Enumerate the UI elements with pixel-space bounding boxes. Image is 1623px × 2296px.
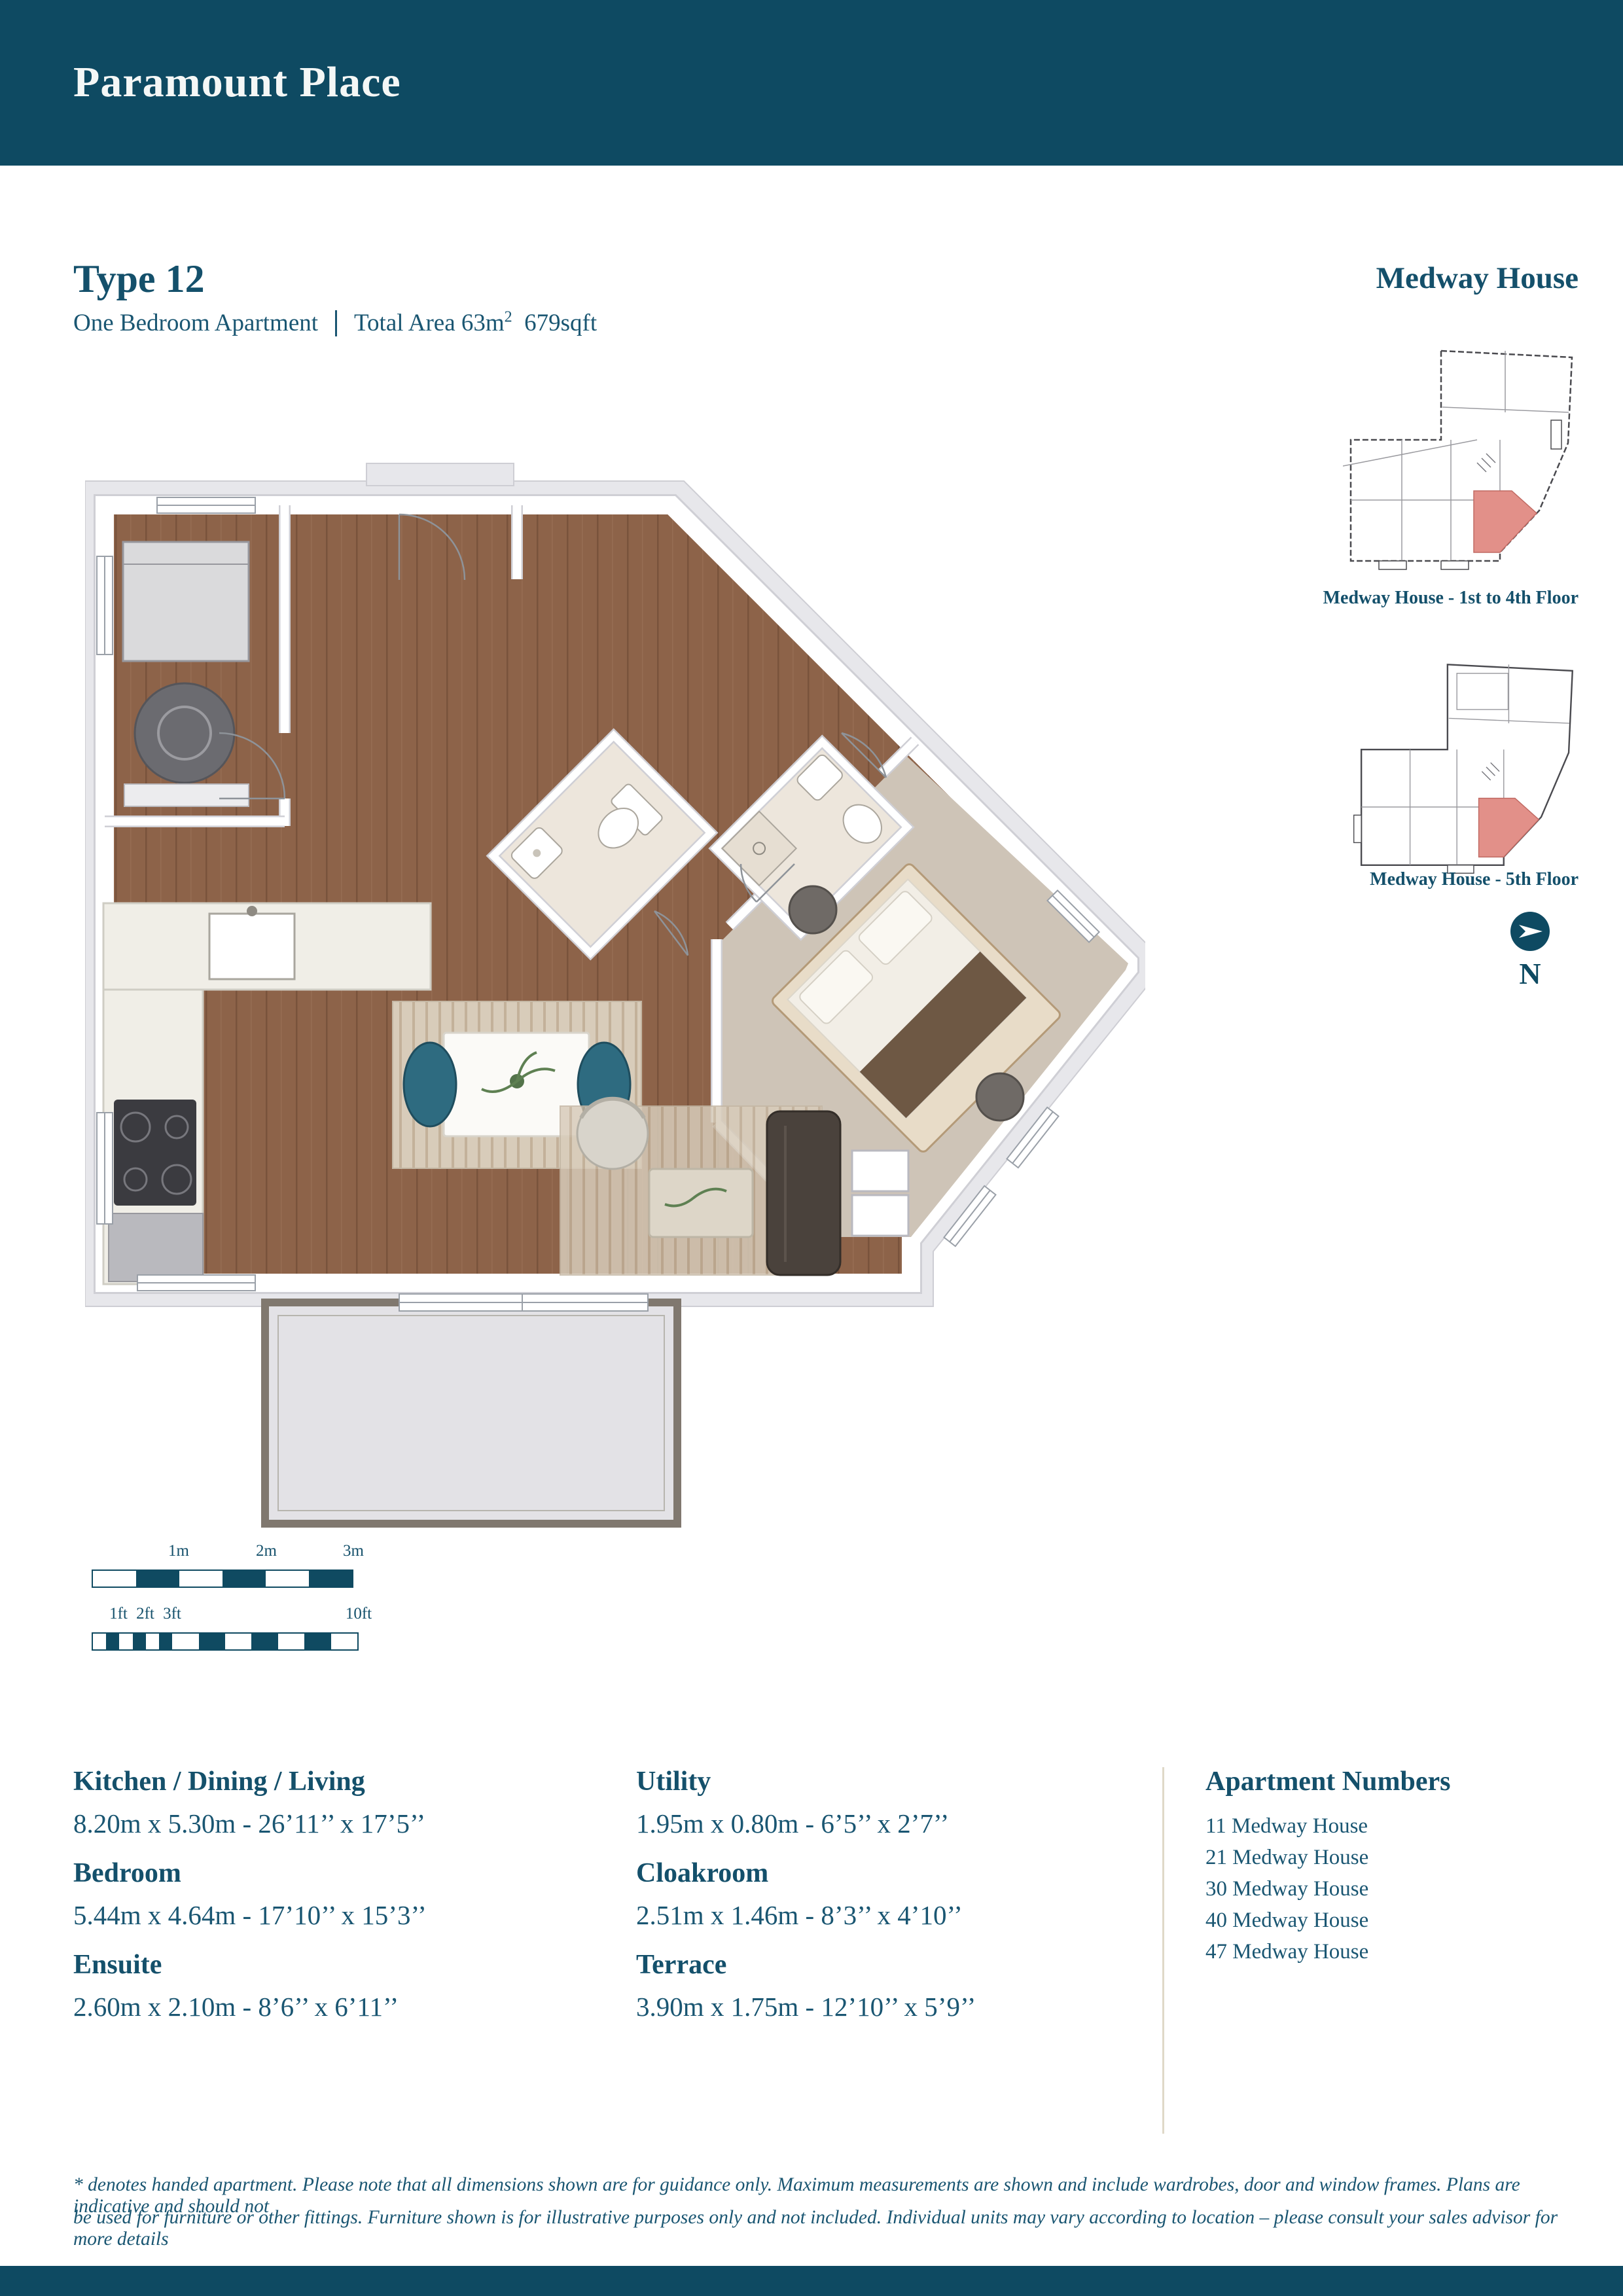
subtitle-divider [335, 310, 337, 336]
bedside-table [789, 886, 836, 933]
sofa [767, 1111, 840, 1275]
utility-shelf [124, 784, 249, 806]
scale-label-2ft: 2ft [136, 1605, 154, 1623]
scale-bar-imperial [92, 1632, 359, 1651]
sink-icon [209, 914, 294, 979]
room-dimensions: 2.60m x 2.10m - 8’6’’ x 6’11’’ [73, 1991, 399, 2022]
scale-bar-metric [92, 1570, 353, 1588]
locator-caption-5th: Medway House - 5th Floor [1212, 869, 1578, 890]
apartment-numbers-title: Apartment Numbers [1205, 1766, 1450, 1797]
scale-label-1ft: 1ft [109, 1605, 128, 1623]
scale-label-3ft: 3ft [163, 1605, 181, 1623]
area-superscript: 2 [505, 309, 512, 326]
room-name: Terrace [636, 1949, 726, 1981]
locator-caption-1to4: Medway House - 1st to 4th Floor [1212, 588, 1578, 609]
entrance-recess [366, 463, 514, 486]
bedside-table [976, 1073, 1024, 1121]
apartment-number-item: 11 Medway House [1205, 1814, 1368, 1839]
living-set [560, 1098, 840, 1275]
coffee-table [649, 1169, 753, 1237]
subtitle-sqft: 679sqft [524, 310, 597, 336]
building-title: Medway House [1178, 260, 1578, 296]
room-dimensions: 8.20m x 5.30m - 26’11’’ x 17’5’’ [73, 1808, 425, 1839]
room-name: Kitchen / Dining / Living [73, 1766, 365, 1797]
base-cabinet [109, 1213, 203, 1282]
room-dimensions: 2.51m x 1.46m - 8’3’’ x 4’10’’ [636, 1899, 963, 1931]
room-dimensions: 5.44m x 4.64m - 17’10’’ x 15’3’’ [73, 1899, 427, 1931]
locator-plan-1to4 [1343, 342, 1578, 572]
apartment-number-item: 40 Medway House [1205, 1909, 1368, 1933]
vertical-rule [1162, 1767, 1164, 2134]
apartment-subtitle: One Bedroom Apartment Total Area 63m2 67… [73, 309, 597, 337]
apartment-number-item: 21 Medway House [1205, 1846, 1368, 1870]
floorplan-svg [85, 452, 1145, 1528]
scale-label-1m: 1m [168, 1542, 189, 1560]
page-title: Paramount Place [73, 58, 401, 107]
scale-label-3m: 3m [343, 1542, 364, 1560]
room-dimensions: 3.90m x 1.75m - 12’10’’ x 5’9’’ [636, 1991, 976, 2022]
north-arrow-icon [1510, 911, 1550, 952]
apartment-number-item: 47 Medway House [1205, 1940, 1368, 1964]
brochure-page: Paramount Place Type 12 One Bedroom Apar… [0, 0, 1623, 2296]
north-label: N [1503, 956, 1558, 991]
apartment-number-item: 30 Medway House [1205, 1877, 1368, 1901]
room-name: Bedroom [73, 1857, 181, 1889]
faucet-icon [247, 906, 257, 916]
room-name: Ensuite [73, 1949, 162, 1981]
terrace [265, 1302, 677, 1524]
hob-icon [114, 1100, 196, 1206]
north-indicator: N [1503, 911, 1558, 991]
room-name: Cloakroom [636, 1857, 768, 1889]
dining-chair [404, 1043, 456, 1126]
subtitle-bedrooms: One Bedroom Apartment [73, 309, 318, 337]
footer-band [0, 2266, 1623, 2296]
apartment-type-title: Type 12 [73, 257, 205, 302]
subtitle-area: Total Area 63m2 679sqft [354, 309, 597, 337]
room-dimensions: 1.95m x 0.80m - 6’5’’ x 2’7’’ [636, 1808, 949, 1839]
scale-label-2m: 2m [256, 1542, 277, 1560]
locator-plan-5th [1353, 656, 1579, 876]
disclaimer-line-2: be used for furniture or other fittings.… [73, 2207, 1559, 2250]
room-name: Utility [636, 1766, 711, 1797]
scale-label-10ft: 10ft [346, 1605, 372, 1623]
